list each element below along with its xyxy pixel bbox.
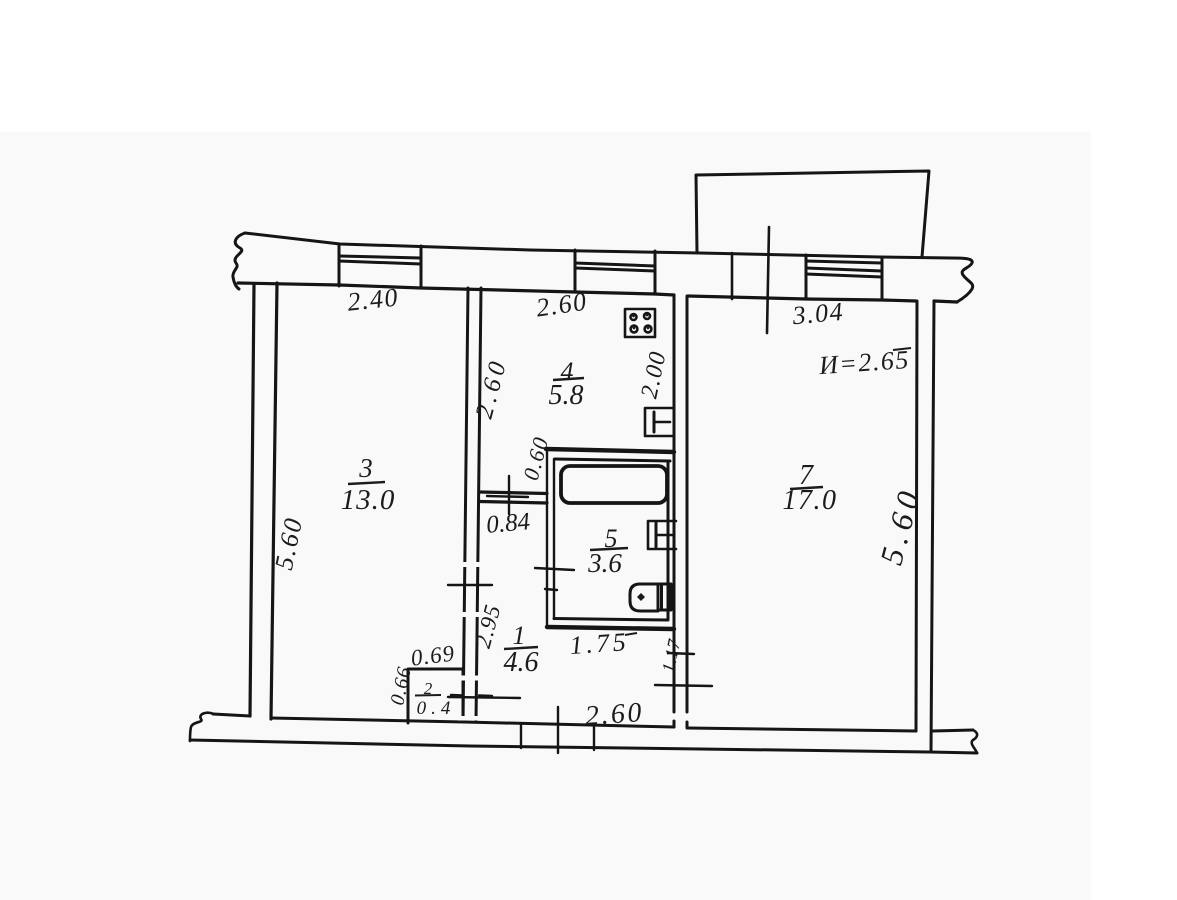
svg-text:2.40: 2.40: [346, 282, 400, 316]
svg-text:2.60: 2.60: [584, 697, 645, 732]
svg-text:4.6: 4.6: [504, 647, 539, 678]
svg-text:3.04: 3.04: [790, 297, 845, 330]
svg-text:17.0: 17.0: [783, 485, 838, 516]
svg-text:13.0: 13.0: [341, 484, 396, 516]
svg-text:1.75: 1.75: [569, 627, 630, 660]
svg-text:1: 1: [513, 621, 526, 650]
svg-text:0.84: 0.84: [485, 508, 531, 539]
svg-text:0.4: 0.4: [417, 698, 456, 719]
svg-text:5.8: 5.8: [549, 380, 584, 411]
svg-text:3: 3: [358, 453, 373, 483]
svg-text:3.6: 3.6: [587, 548, 622, 578]
svg-text:0.69: 0.69: [409, 640, 456, 670]
